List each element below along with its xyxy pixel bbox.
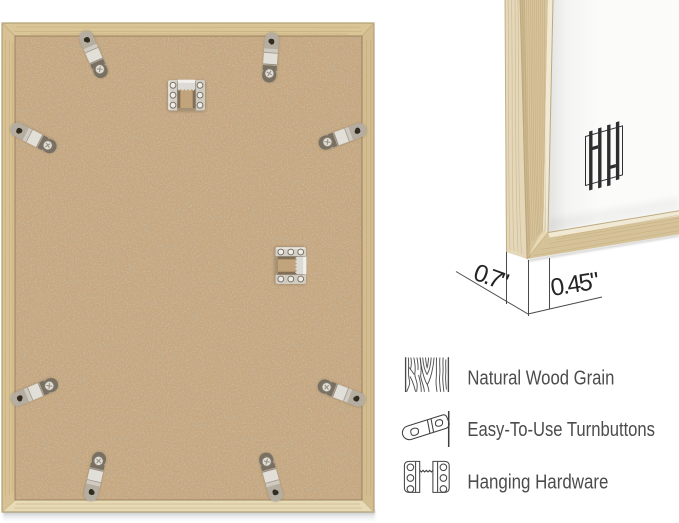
svg-text:0.7": 0.7" — [470, 259, 512, 296]
svg-text:Natural Wood Grain: Natural Wood Grain — [467, 368, 614, 390]
svg-text:0.45": 0.45" — [549, 268, 602, 302]
svg-text:Hanging Hardware: Hanging Hardware — [467, 472, 608, 494]
svg-text:Easy-To-Use Turnbuttons: Easy-To-Use Turnbuttons — [467, 419, 655, 441]
